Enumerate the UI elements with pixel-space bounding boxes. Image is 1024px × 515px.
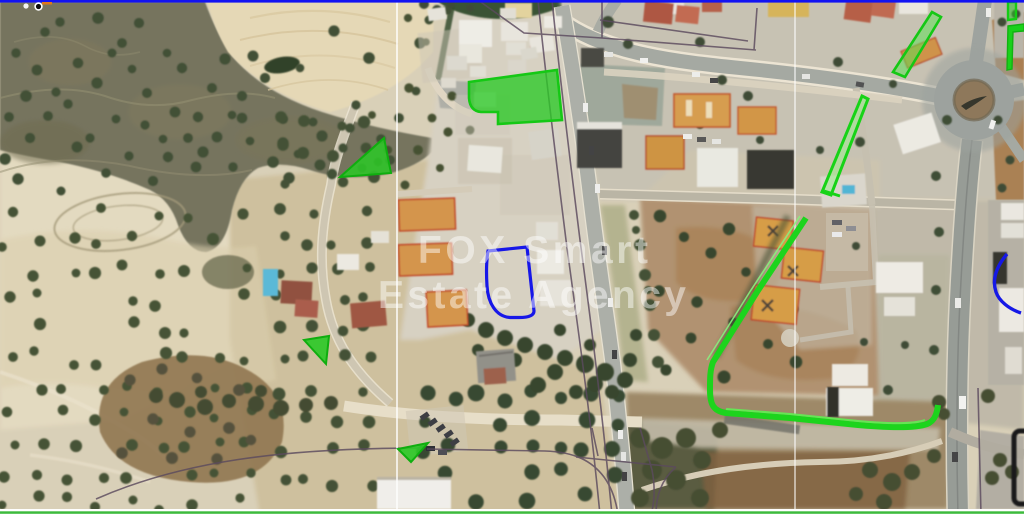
svg-text:Estate Agency: Estate Agency (378, 274, 686, 317)
